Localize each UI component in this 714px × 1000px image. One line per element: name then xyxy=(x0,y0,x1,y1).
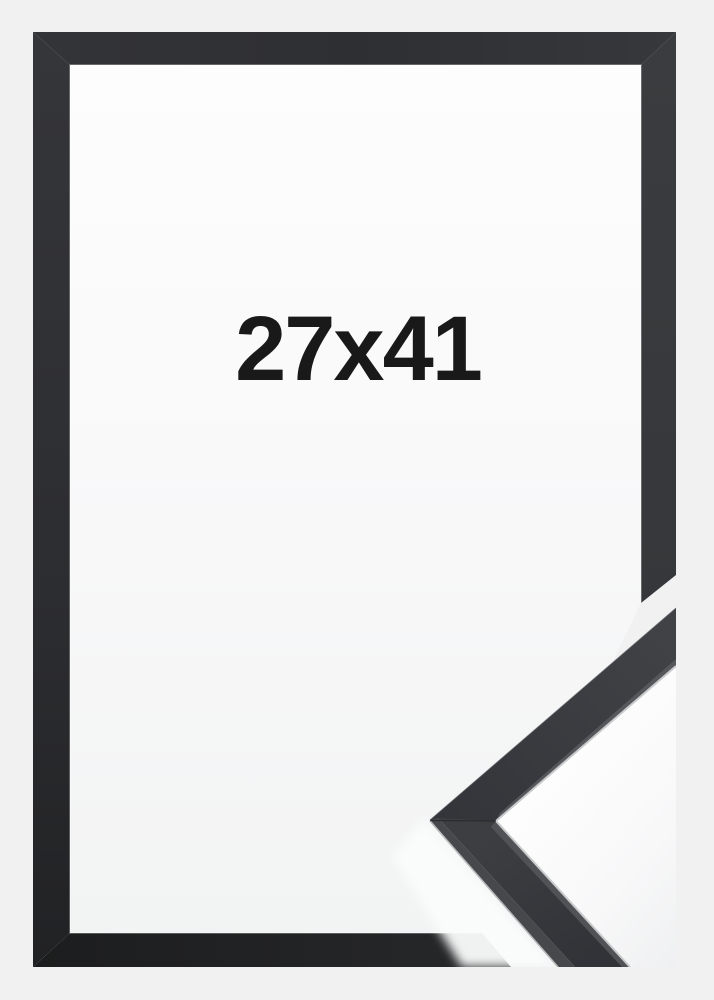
product-image: 27x41 xyxy=(0,0,714,1000)
size-label: 27x41 xyxy=(235,298,481,400)
molding-miter-seam xyxy=(430,821,496,822)
frame-left-bar xyxy=(33,32,70,967)
frame-top-bar xyxy=(33,32,676,65)
frame-product-photo: 27x41 xyxy=(0,0,714,1000)
